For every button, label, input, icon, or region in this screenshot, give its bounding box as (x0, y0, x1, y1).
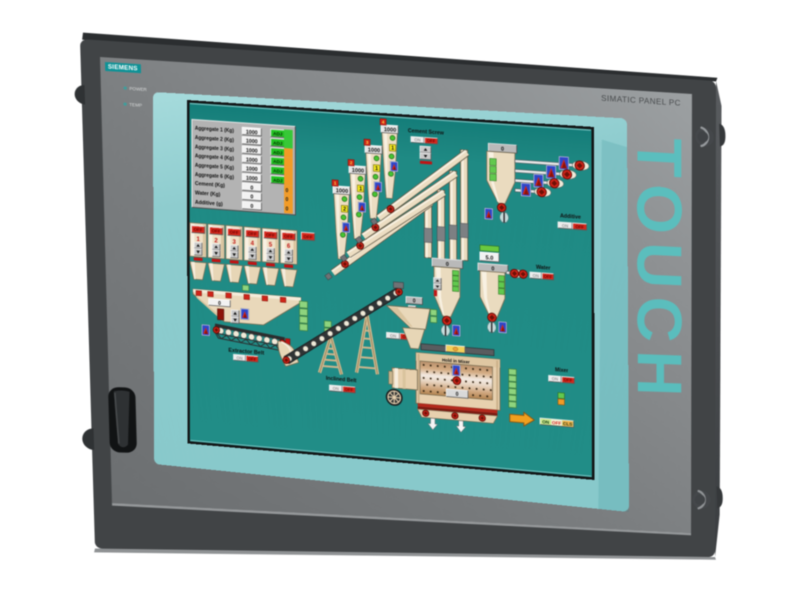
svg-text:OFF: OFF (284, 234, 293, 240)
svg-text:OFF: OFF (552, 420, 562, 426)
svg-text:ADJ: ADJ (273, 168, 283, 174)
svg-text:1000: 1000 (352, 168, 364, 175)
svg-text:OFF: OFF (575, 224, 584, 230)
svg-text:0: 0 (286, 188, 289, 194)
svg-text:OFF: OFF (544, 274, 553, 280)
svg-text:Water: Water (536, 265, 551, 272)
svg-text:1000: 1000 (246, 129, 258, 136)
svg-text:ADJ: ADJ (273, 131, 283, 137)
svg-text:ON: ON (533, 273, 539, 279)
svg-text:OFF: OFF (427, 138, 436, 144)
svg-text:0: 0 (456, 392, 459, 398)
svg-text:0: 0 (286, 206, 289, 212)
svg-text:ON: ON (333, 386, 339, 392)
svg-text:1000: 1000 (246, 157, 258, 164)
svg-text:1000: 1000 (246, 139, 258, 146)
svg-text:ON: ON (236, 355, 242, 361)
svg-text:0: 0 (250, 204, 253, 210)
svg-text:0: 0 (250, 185, 253, 191)
svg-text:ADJ: ADJ (273, 159, 283, 165)
svg-text:OFF: OFF (303, 234, 312, 240)
svg-text:ON: ON (562, 223, 568, 229)
svg-text:Mixer: Mixer (555, 367, 568, 374)
svg-text:TOUCH: TOUCH (623, 135, 694, 405)
svg-text:0: 0 (250, 195, 253, 201)
svg-text:0: 0 (413, 298, 416, 304)
svg-text:1: 1 (391, 146, 394, 152)
svg-text:OFF: OFF (266, 232, 275, 238)
svg-text:5.0: 5.0 (486, 255, 494, 262)
svg-text:ADJ: ADJ (273, 178, 283, 184)
svg-text:2: 2 (343, 207, 346, 213)
svg-text:OFF: OFF (212, 228, 221, 234)
svg-text:CLS: CLS (563, 421, 572, 427)
svg-text:OFF: OFF (564, 377, 573, 383)
svg-text:OFF: OFF (194, 227, 203, 233)
svg-text:1000: 1000 (368, 147, 380, 154)
svg-text:0: 0 (286, 197, 289, 203)
svg-text:OFF: OFF (230, 230, 239, 236)
svg-text:ON: ON (542, 419, 549, 425)
svg-text:ON: ON (552, 376, 558, 382)
svg-text:OFF: OFF (248, 231, 257, 237)
svg-text:1000: 1000 (246, 176, 258, 183)
svg-text:OFF: OFF (248, 356, 257, 362)
svg-text:1000: 1000 (336, 188, 348, 195)
svg-text:1: 1 (375, 166, 378, 172)
svg-text:1: 1 (359, 186, 362, 192)
svg-text:ADJ: ADJ (273, 150, 283, 156)
svg-text:TEMP: TEMP (129, 102, 142, 108)
svg-text:1000: 1000 (384, 127, 396, 134)
svg-text:0: 0 (218, 301, 221, 307)
svg-text:1000: 1000 (246, 166, 258, 173)
svg-text:OFF: OFF (345, 387, 354, 393)
svg-text:ON: ON (414, 137, 420, 143)
svg-text:1000: 1000 (246, 148, 258, 155)
svg-text:ON: ON (390, 333, 396, 339)
svg-text:ADJ: ADJ (273, 140, 283, 146)
